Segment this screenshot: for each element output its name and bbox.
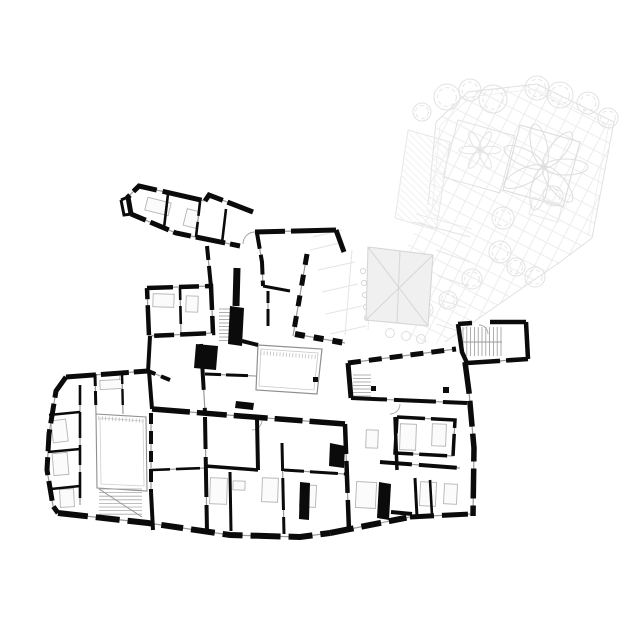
wall-segment bbox=[148, 336, 150, 372]
furniture bbox=[186, 296, 199, 312]
furniture bbox=[355, 481, 376, 508]
furniture bbox=[419, 482, 436, 507]
furniture bbox=[262, 478, 279, 503]
furniture bbox=[366, 430, 379, 448]
pier bbox=[443, 387, 449, 393]
wall-segment bbox=[255, 230, 336, 232]
wet-core-poche bbox=[194, 344, 218, 370]
paper-background bbox=[0, 0, 640, 640]
furniture bbox=[210, 478, 228, 505]
wall-segment bbox=[348, 363, 351, 398]
wall-poche bbox=[299, 482, 310, 520]
wall-segment bbox=[526, 322, 528, 359]
wall-segment bbox=[415, 478, 417, 517]
pier bbox=[313, 377, 318, 382]
wall-segment bbox=[151, 492, 153, 530]
wall-segment bbox=[230, 472, 231, 531]
floor-plan-page bbox=[0, 0, 640, 640]
furniture bbox=[432, 424, 447, 446]
wall-poche bbox=[329, 443, 345, 468]
pier bbox=[371, 386, 376, 391]
furniture bbox=[443, 484, 457, 505]
furniture bbox=[60, 489, 75, 508]
wall-poche bbox=[377, 482, 391, 520]
floor-plan-drawing bbox=[0, 0, 640, 640]
furniture bbox=[400, 424, 417, 451]
wall-segment bbox=[205, 417, 207, 532]
wall-segment bbox=[391, 512, 412, 514]
canopy-layer bbox=[366, 247, 433, 326]
furniture bbox=[153, 294, 174, 308]
furniture bbox=[52, 452, 69, 475]
wall-segment bbox=[236, 268, 237, 306]
wall-segment bbox=[257, 419, 258, 470]
stair-core-poche bbox=[228, 306, 244, 346]
furniture bbox=[100, 379, 122, 389]
wall-segment bbox=[282, 443, 284, 534]
furniture bbox=[233, 481, 245, 490]
